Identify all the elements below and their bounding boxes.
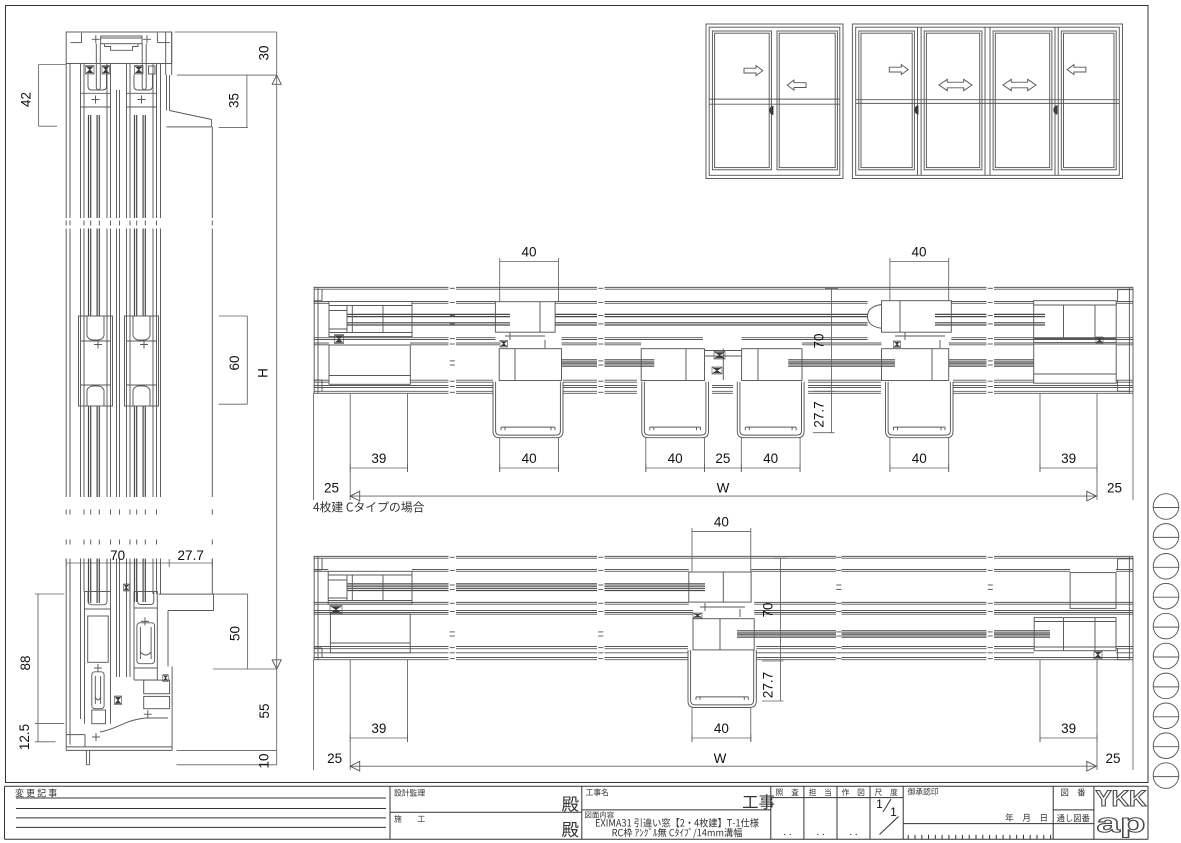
svg-text:W: W (717, 481, 730, 496)
svg-text:39: 39 (1061, 721, 1076, 736)
svg-text:50: 50 (227, 626, 242, 641)
svg-text:88: 88 (18, 655, 33, 670)
svg-text:25: 25 (715, 451, 730, 466)
svg-text:27.7: 27.7 (178, 548, 204, 563)
svg-text:42: 42 (19, 92, 34, 107)
svg-text:40: 40 (714, 515, 729, 530)
svg-text:40: 40 (763, 451, 778, 466)
svg-text:30: 30 (257, 45, 272, 60)
svg-text:25: 25 (1107, 481, 1122, 496)
svg-text:39: 39 (1061, 451, 1076, 466)
svg-text:40: 40 (912, 451, 927, 466)
svg-text:70: 70 (812, 333, 827, 348)
svg-text:. .: . . (816, 827, 824, 838)
svg-text:40: 40 (522, 451, 537, 466)
svg-text:35: 35 (227, 93, 242, 108)
svg-text:10: 10 (256, 753, 271, 768)
svg-text:40: 40 (521, 245, 536, 260)
svg-text:27.7: 27.7 (812, 401, 827, 427)
svg-text:70: 70 (761, 602, 776, 617)
svg-text:W: W (714, 751, 727, 766)
svg-text:70: 70 (110, 548, 125, 563)
svg-text:55: 55 (257, 703, 272, 718)
svg-text:12.5: 12.5 (17, 724, 32, 750)
svg-text:1: 1 (890, 805, 897, 819)
svg-text:39: 39 (371, 451, 386, 466)
svg-text:1: 1 (876, 797, 883, 811)
svg-text:40: 40 (714, 721, 729, 736)
svg-text:. .: . . (849, 827, 857, 838)
svg-text:ap: ap (1097, 808, 1146, 838)
svg-text:25: 25 (327, 751, 342, 766)
svg-text:40: 40 (668, 451, 683, 466)
svg-text:. .: . . (783, 827, 791, 838)
svg-text:27.7: 27.7 (761, 672, 776, 698)
svg-text:40: 40 (911, 245, 926, 260)
svg-text:39: 39 (371, 721, 386, 736)
svg-text:25: 25 (324, 481, 339, 496)
svg-text:H: H (256, 368, 271, 378)
svg-text:25: 25 (1105, 751, 1120, 766)
svg-text:60: 60 (227, 355, 242, 370)
